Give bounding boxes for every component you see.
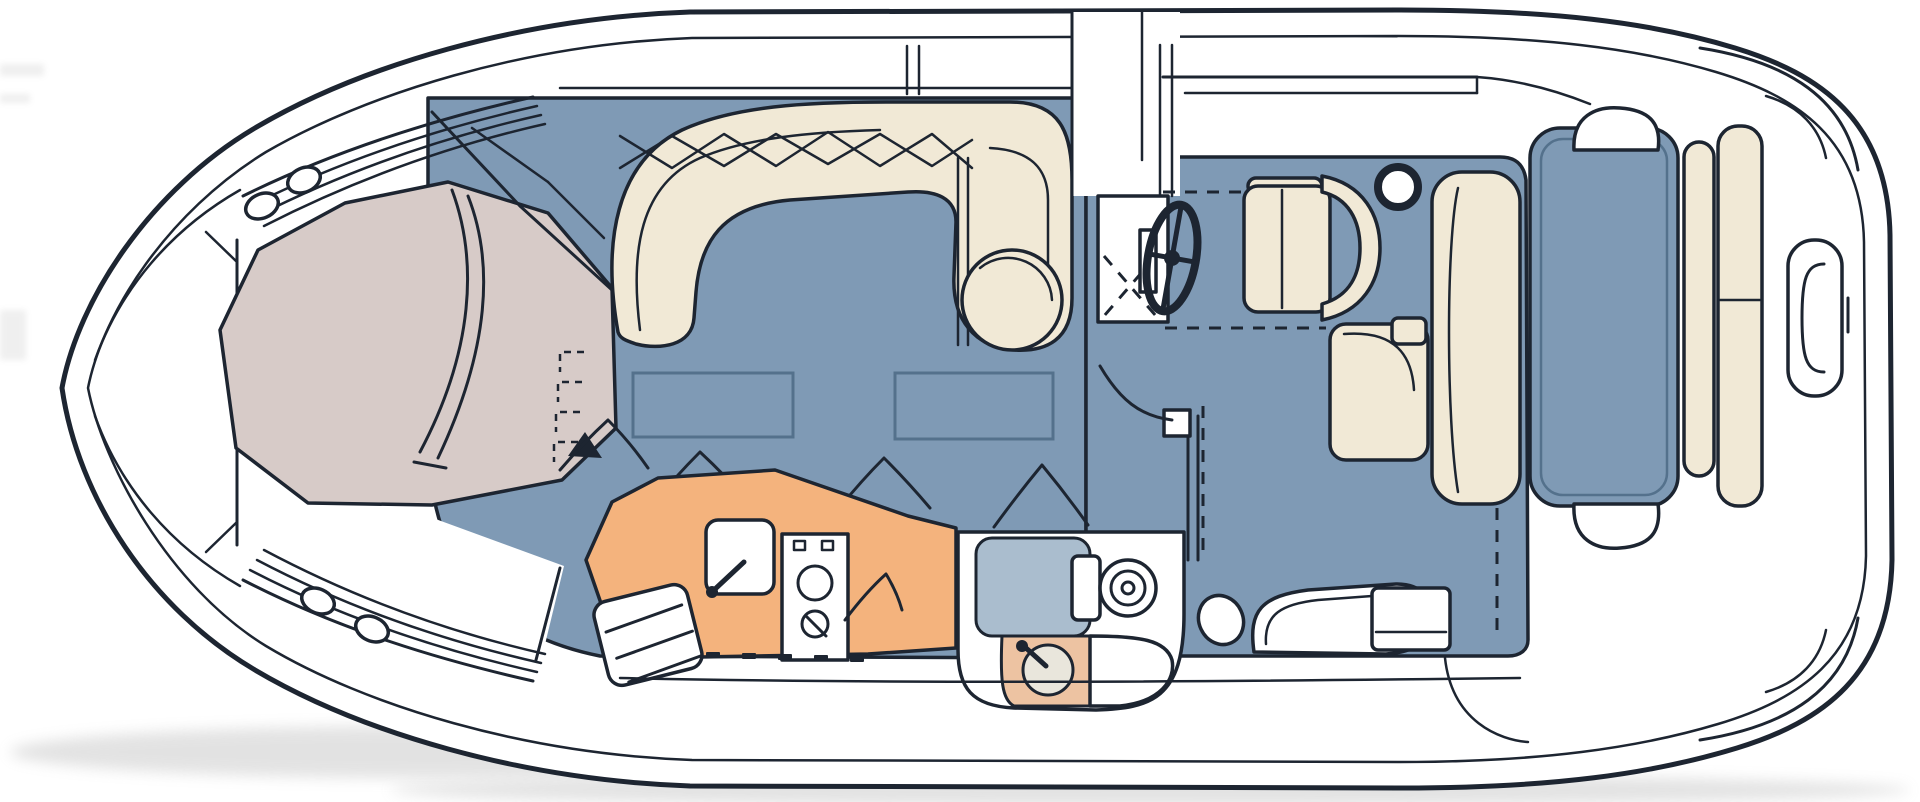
settee-round-seat xyxy=(962,250,1062,350)
floor-plan-svg: Motor yacht interior deck plan, top view… xyxy=(0,0,1920,802)
track-tick xyxy=(778,654,792,660)
platform-grab-rail xyxy=(1788,240,1842,396)
drink-holder-ring xyxy=(1378,167,1418,207)
swim-platform xyxy=(1788,240,1848,396)
sink-bowl xyxy=(706,520,774,594)
track-tick xyxy=(850,656,864,662)
scan-artifact xyxy=(0,310,26,360)
track-tick xyxy=(742,653,756,659)
helm-console xyxy=(1098,196,1168,322)
galley-sink xyxy=(706,520,774,598)
faucet-base xyxy=(706,586,718,598)
scan-artifact xyxy=(0,94,30,103)
aft-sunpad xyxy=(1530,108,1678,548)
companionway xyxy=(1072,12,1180,196)
lounge-armrest xyxy=(1392,318,1426,344)
sunpad-cushion xyxy=(1530,128,1678,506)
track-tick xyxy=(706,652,720,658)
bench-end-box xyxy=(1372,588,1450,650)
stove-panel xyxy=(782,534,848,660)
transom-cushion-inner xyxy=(1684,142,1714,476)
helm-seat xyxy=(1244,176,1380,320)
stern-cleat-bottom xyxy=(1574,504,1659,548)
transom-cushion-outer xyxy=(1718,126,1762,506)
vanity xyxy=(1001,636,1172,706)
step-bracket xyxy=(1164,410,1190,436)
stove xyxy=(782,534,848,660)
floor-hatch xyxy=(895,373,1053,439)
scan-artifact xyxy=(0,64,44,76)
vanity-faucet-base xyxy=(1016,640,1028,652)
stern-cleat-top xyxy=(1574,108,1659,150)
toilet-bowl xyxy=(1100,560,1156,616)
walkthrough-column xyxy=(1072,12,1180,196)
floor-hatch xyxy=(633,373,793,437)
floor-plan-stage: Motor yacht interior deck plan, top view… xyxy=(0,0,1920,802)
lounge-side-strip xyxy=(1432,172,1520,504)
track-tick xyxy=(814,655,828,661)
transom-seats xyxy=(1684,126,1762,506)
helm-seat-base xyxy=(1244,186,1330,312)
toilet-tank xyxy=(1072,556,1100,620)
toilet xyxy=(1072,556,1156,620)
